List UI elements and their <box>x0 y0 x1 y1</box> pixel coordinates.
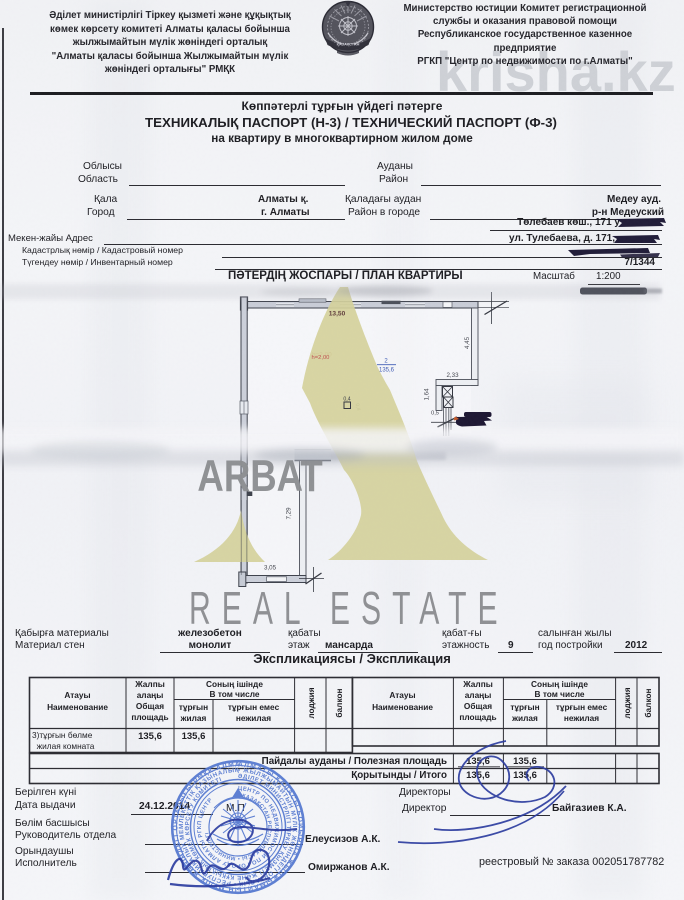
svg-text:АЛМАТЫ ҚАЛАСЫ БОЙЫНША ЖЫЛЖЫМАЙ: АЛМАТЫ ҚАЛАСЫ БОЙЫНША ЖЫЛЖЫМАЙТЫН МҮЛІК … <box>0 0 306 894</box>
